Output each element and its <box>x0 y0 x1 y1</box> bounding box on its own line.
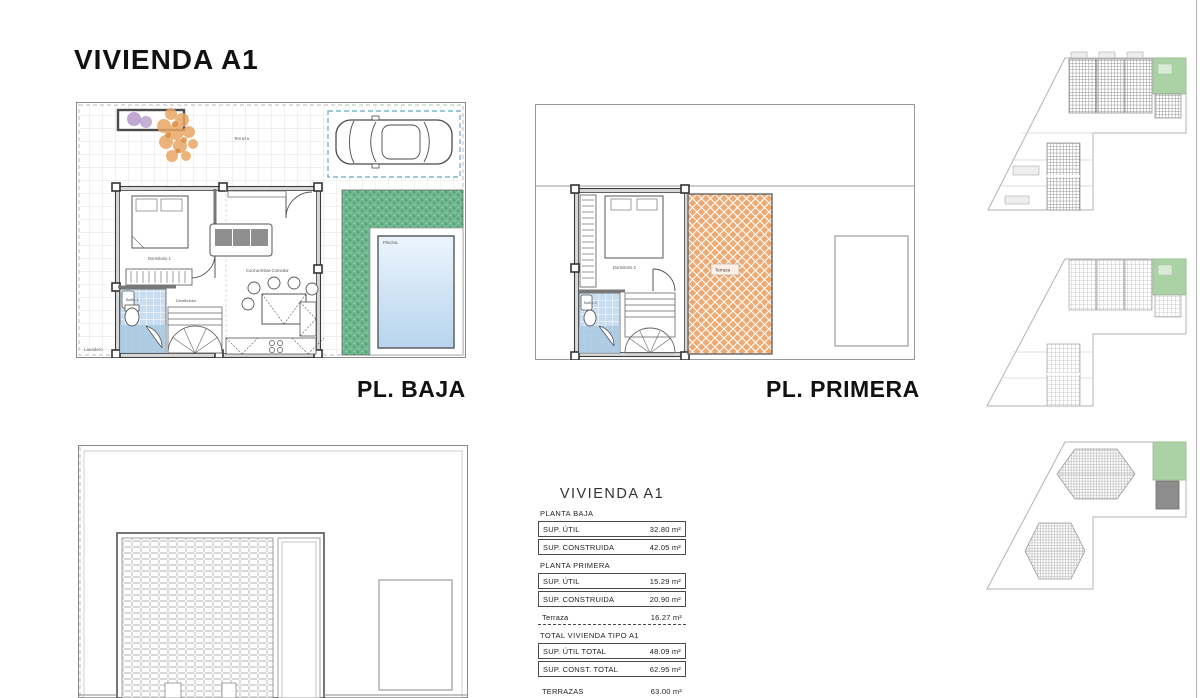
section-header: TOTAL VIVIENDA TIPO A1 <box>540 631 686 640</box>
roof-chimney <box>222 683 236 698</box>
site-thumbnail-ground <box>983 28 1188 213</box>
table-section-planta-primera: PLANTA PRIMERA SUP. ÚTIL 15.29 m² SUP. C… <box>538 561 686 625</box>
pool <box>378 236 454 348</box>
living-label: Cocina-Estar-Comedor <box>246 268 289 273</box>
staircase <box>168 307 222 353</box>
wardrobe <box>580 195 596 287</box>
section-header: PLANTA PRIMERA <box>540 561 686 570</box>
table-section-exterior: TERRAZAS 63.00 m² PISCINA 9.50 m² <box>538 684 686 698</box>
table-title: VIVIENDA A1 <box>538 486 686 502</box>
table-section-total: TOTAL VIVIENDA TIPO A1 SUP. ÚTIL TOTAL 4… <box>538 631 686 677</box>
house-unit: Dormitorio 1 Baño 1 Distribuidor <box>112 183 324 358</box>
first-plan-title: PL. PRIMERA <box>766 376 920 403</box>
laundry-label: Lavadero <box>84 347 103 352</box>
first-floor-plan: Dormitorio 2 Baño 2 Distribuidor 2 <box>535 104 915 360</box>
terrace: Terraza <box>688 194 772 354</box>
page-title: VIVIENDA A1 <box>74 44 259 76</box>
highlighted-unit <box>1153 442 1186 480</box>
terrace-label: Terraza <box>715 268 731 273</box>
bed <box>132 196 188 248</box>
parking-space <box>328 111 460 177</box>
roof-plan <box>78 445 468 698</box>
table-row: TERRAZAS 63.00 m² <box>538 684 686 698</box>
section-header: PLANTA BAJA <box>540 509 686 518</box>
table-row: Terraza 16.27 m² <box>538 610 686 625</box>
pool-outline <box>835 236 908 346</box>
table-row: SUP. CONSTRUIDA 20.90 m² <box>538 591 686 607</box>
site-thumbnail-first <box>983 252 1188 410</box>
table-row: SUP. CONSTRUIDA 42.05 m² <box>538 539 686 555</box>
hall-label: Distribuidor <box>176 298 197 303</box>
ground-plan-title: PL. BAJA <box>357 376 466 403</box>
table-row: SUP. ÚTIL 32.80 m² <box>538 521 686 537</box>
highlighted-unit <box>1153 58 1186 94</box>
table-row: SUP. ÚTIL TOTAL 48.09 m² <box>538 643 686 659</box>
pool-outline <box>379 580 452 690</box>
highlighted-unit <box>1153 259 1186 295</box>
bathroom: Baño 2 <box>579 293 620 353</box>
site-thumbnail-roof <box>983 435 1188 593</box>
drawing-sheet: VIVIENDA A1 Terraza <box>0 0 1200 698</box>
bedroom-label: Dormitorio 1 <box>148 256 171 261</box>
bed <box>605 196 663 258</box>
table-row: SUP. ÚTIL 15.29 m² <box>538 573 686 589</box>
bath-label: Baño 2 <box>584 300 597 305</box>
table-section-planta-baja: PLANTA BAJA SUP. ÚTIL 32.80 m² SUP. CONS… <box>538 509 686 555</box>
pool-label: Piscina <box>383 240 398 245</box>
table-row: SUP. CONST. TOTAL 62.95 m² <box>538 661 686 677</box>
bath-label: Baño 1 <box>126 297 139 302</box>
highlighted-roof <box>1156 481 1179 509</box>
bedroom-label: Dormitorio 2 <box>613 265 636 270</box>
roof <box>117 533 324 698</box>
car-icon <box>336 116 452 168</box>
sheet-frame-line <box>1196 0 1197 698</box>
tv-shelf <box>228 191 286 197</box>
house-unit: Dormitorio 2 Baño 2 Distribuidor 2 <box>571 185 689 360</box>
bathroom: Baño 1 <box>120 289 166 353</box>
wardrobe <box>126 269 192 285</box>
ground-floor-plan: Terraza Piscina <box>76 102 466 358</box>
area-summary-table: VIVIENDA A1 PLANTA BAJA SUP. ÚTIL 32.80 … <box>538 486 686 698</box>
terrace-label: Terraza <box>234 136 250 141</box>
roof-chimney <box>165 683 181 698</box>
sofa <box>210 224 272 256</box>
